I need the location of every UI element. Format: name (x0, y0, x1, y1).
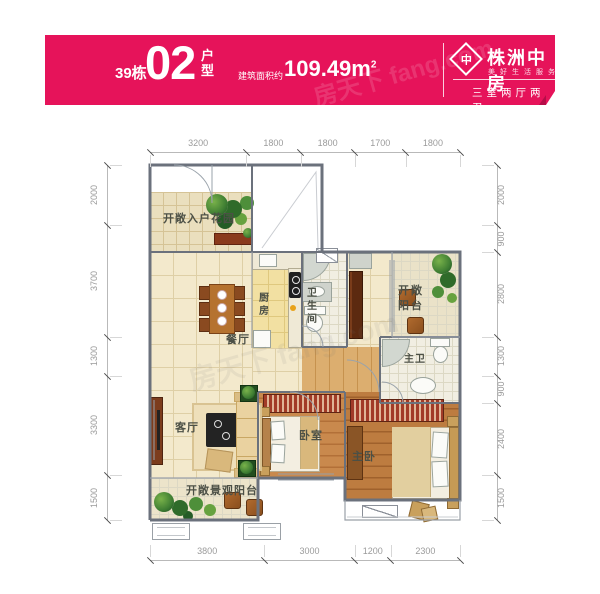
dim-value-right: 900 (496, 369, 506, 409)
ottoman (205, 448, 234, 472)
room-label-master-bedroom: 主卧 (352, 448, 376, 464)
room-label-garden: 开敞入户花园 (163, 210, 235, 226)
bedroom-pillow (271, 444, 286, 464)
ac-unit (152, 523, 190, 540)
floorplan-page: 房天下 fang.com 39栋 02 户型 建筑面积约 109.49m2 中 … (0, 0, 600, 594)
dim-value-right: 2800 (496, 274, 506, 314)
master-bed-blanket (392, 427, 431, 497)
kitchen-cabinet (253, 330, 271, 348)
flue-shaft-symbol (316, 248, 338, 263)
dim-value-right: 2000 (496, 175, 506, 215)
dim-ext (482, 337, 494, 338)
kitchen-sink (259, 254, 277, 267)
garden-potted-plant (243, 228, 253, 238)
area-prefix-label: 建筑面积约 (238, 69, 283, 82)
dim-ext (482, 475, 494, 476)
coffee-table (206, 413, 238, 447)
dining-plate (217, 303, 227, 313)
table-decor (222, 432, 230, 440)
dim-line-top (150, 152, 460, 153)
room-label-master-bath: 主卫 (404, 350, 426, 365)
bedroom-blanket (300, 417, 318, 469)
brand-logo-icon: 中 (449, 42, 483, 76)
dim-ext (482, 225, 494, 226)
master-pillow (431, 431, 449, 458)
dim-value-bottom: 3000 (285, 546, 335, 556)
dim-ext (150, 545, 151, 557)
dining-plate (217, 316, 227, 326)
bedroom-wardrobe (263, 394, 341, 413)
dim-line-left (107, 165, 108, 520)
dim-ext (150, 155, 151, 167)
corridor-wood-floor (302, 347, 392, 392)
dim-ext (246, 155, 247, 167)
master-basin (410, 377, 436, 394)
room-label-kitchen: 厨房 (259, 292, 272, 318)
balcony-plants (432, 254, 452, 274)
dim-ext (482, 376, 494, 377)
dim-value-right: 1500 (496, 478, 506, 518)
dim-ext (110, 225, 122, 226)
dim-ext (110, 376, 122, 377)
door-leaf (349, 271, 363, 339)
dim-value-left: 1500 (89, 478, 99, 518)
dim-value-bottom: 1200 (348, 546, 398, 556)
dining-plate (217, 290, 227, 300)
bedroom-pillow (270, 421, 285, 441)
dim-ext (460, 545, 461, 557)
dim-ext (110, 520, 122, 521)
unit-type-label: 户型 (201, 48, 215, 78)
stove-burner (292, 287, 300, 295)
dim-ext (355, 155, 356, 167)
dim-value-top: 1800 (303, 138, 353, 148)
master-wardrobe (350, 399, 444, 422)
balcony-stool (407, 317, 424, 334)
dim-value-top: 1800 (248, 138, 298, 148)
dim-value-left: 1300 (89, 336, 99, 376)
balcony-stool (246, 499, 263, 516)
banner-divider (443, 43, 444, 97)
logo-divider-line (453, 79, 594, 80)
table-decor (214, 420, 222, 428)
room-label-top-balcony: 开敞阳台 (398, 284, 426, 314)
room-label-bathroom: 卫生间 (307, 287, 320, 326)
room-label-bedroom: 卧室 (299, 427, 323, 443)
dim-ext (482, 520, 494, 521)
kitchen-fruit (290, 305, 296, 311)
layout-summary: 三室两厅两卫 (472, 85, 555, 115)
dim-ext (301, 155, 302, 167)
ac-unit (243, 523, 281, 540)
brand-tagline: 美好生活服务商 (488, 67, 572, 77)
washing-machine (349, 253, 372, 269)
dim-ext (460, 155, 461, 167)
dim-value-right: 2400 (496, 419, 506, 459)
dim-ext (482, 165, 494, 166)
room-label-dining: 餐厅 (226, 331, 250, 347)
master-headboard (449, 427, 459, 499)
dim-ext (482, 403, 494, 404)
bay-window-symbol (362, 505, 398, 518)
room-label-bottom-balcony: 开敞景观阳台 (186, 482, 258, 498)
balcony-plants (154, 492, 174, 512)
dim-ext (110, 165, 122, 166)
dim-ext (264, 545, 265, 557)
dim-value-right: 900 (496, 219, 506, 259)
stove-burner (292, 276, 300, 284)
master-pillow (431, 461, 448, 488)
corridor-tile-floor (252, 348, 302, 392)
dim-value-bottom: 2300 (400, 546, 450, 556)
header-banner: 房天下 fang.com 39栋 02 户型 建筑面积约 109.49m2 中 … (45, 35, 555, 105)
dim-ext (406, 155, 407, 167)
dim-value-left: 3300 (89, 405, 99, 445)
dim-value-left: 3700 (89, 261, 99, 301)
living-plant (242, 386, 255, 399)
living-plant (240, 461, 253, 474)
dim-ext (482, 252, 494, 253)
tv-icon (157, 410, 160, 450)
room-label-living: 客厅 (175, 419, 199, 435)
master-toilet-icon (433, 346, 448, 363)
dim-value-top: 3200 (173, 138, 223, 148)
building-number: 39栋 (115, 62, 147, 83)
dim-value-bottom: 3800 (182, 546, 232, 556)
dim-value-top: 1800 (408, 138, 458, 148)
dim-ext (110, 337, 122, 338)
unit-number: 02 (145, 35, 195, 90)
nightstand (447, 498, 459, 509)
dim-line-bottom (150, 560, 460, 561)
dim-value-top: 1700 (355, 138, 405, 148)
area-value: 109.49m2 (284, 56, 376, 82)
dim-ext (110, 475, 122, 476)
nightstand (447, 416, 459, 427)
dim-value-left: 2000 (89, 175, 99, 215)
